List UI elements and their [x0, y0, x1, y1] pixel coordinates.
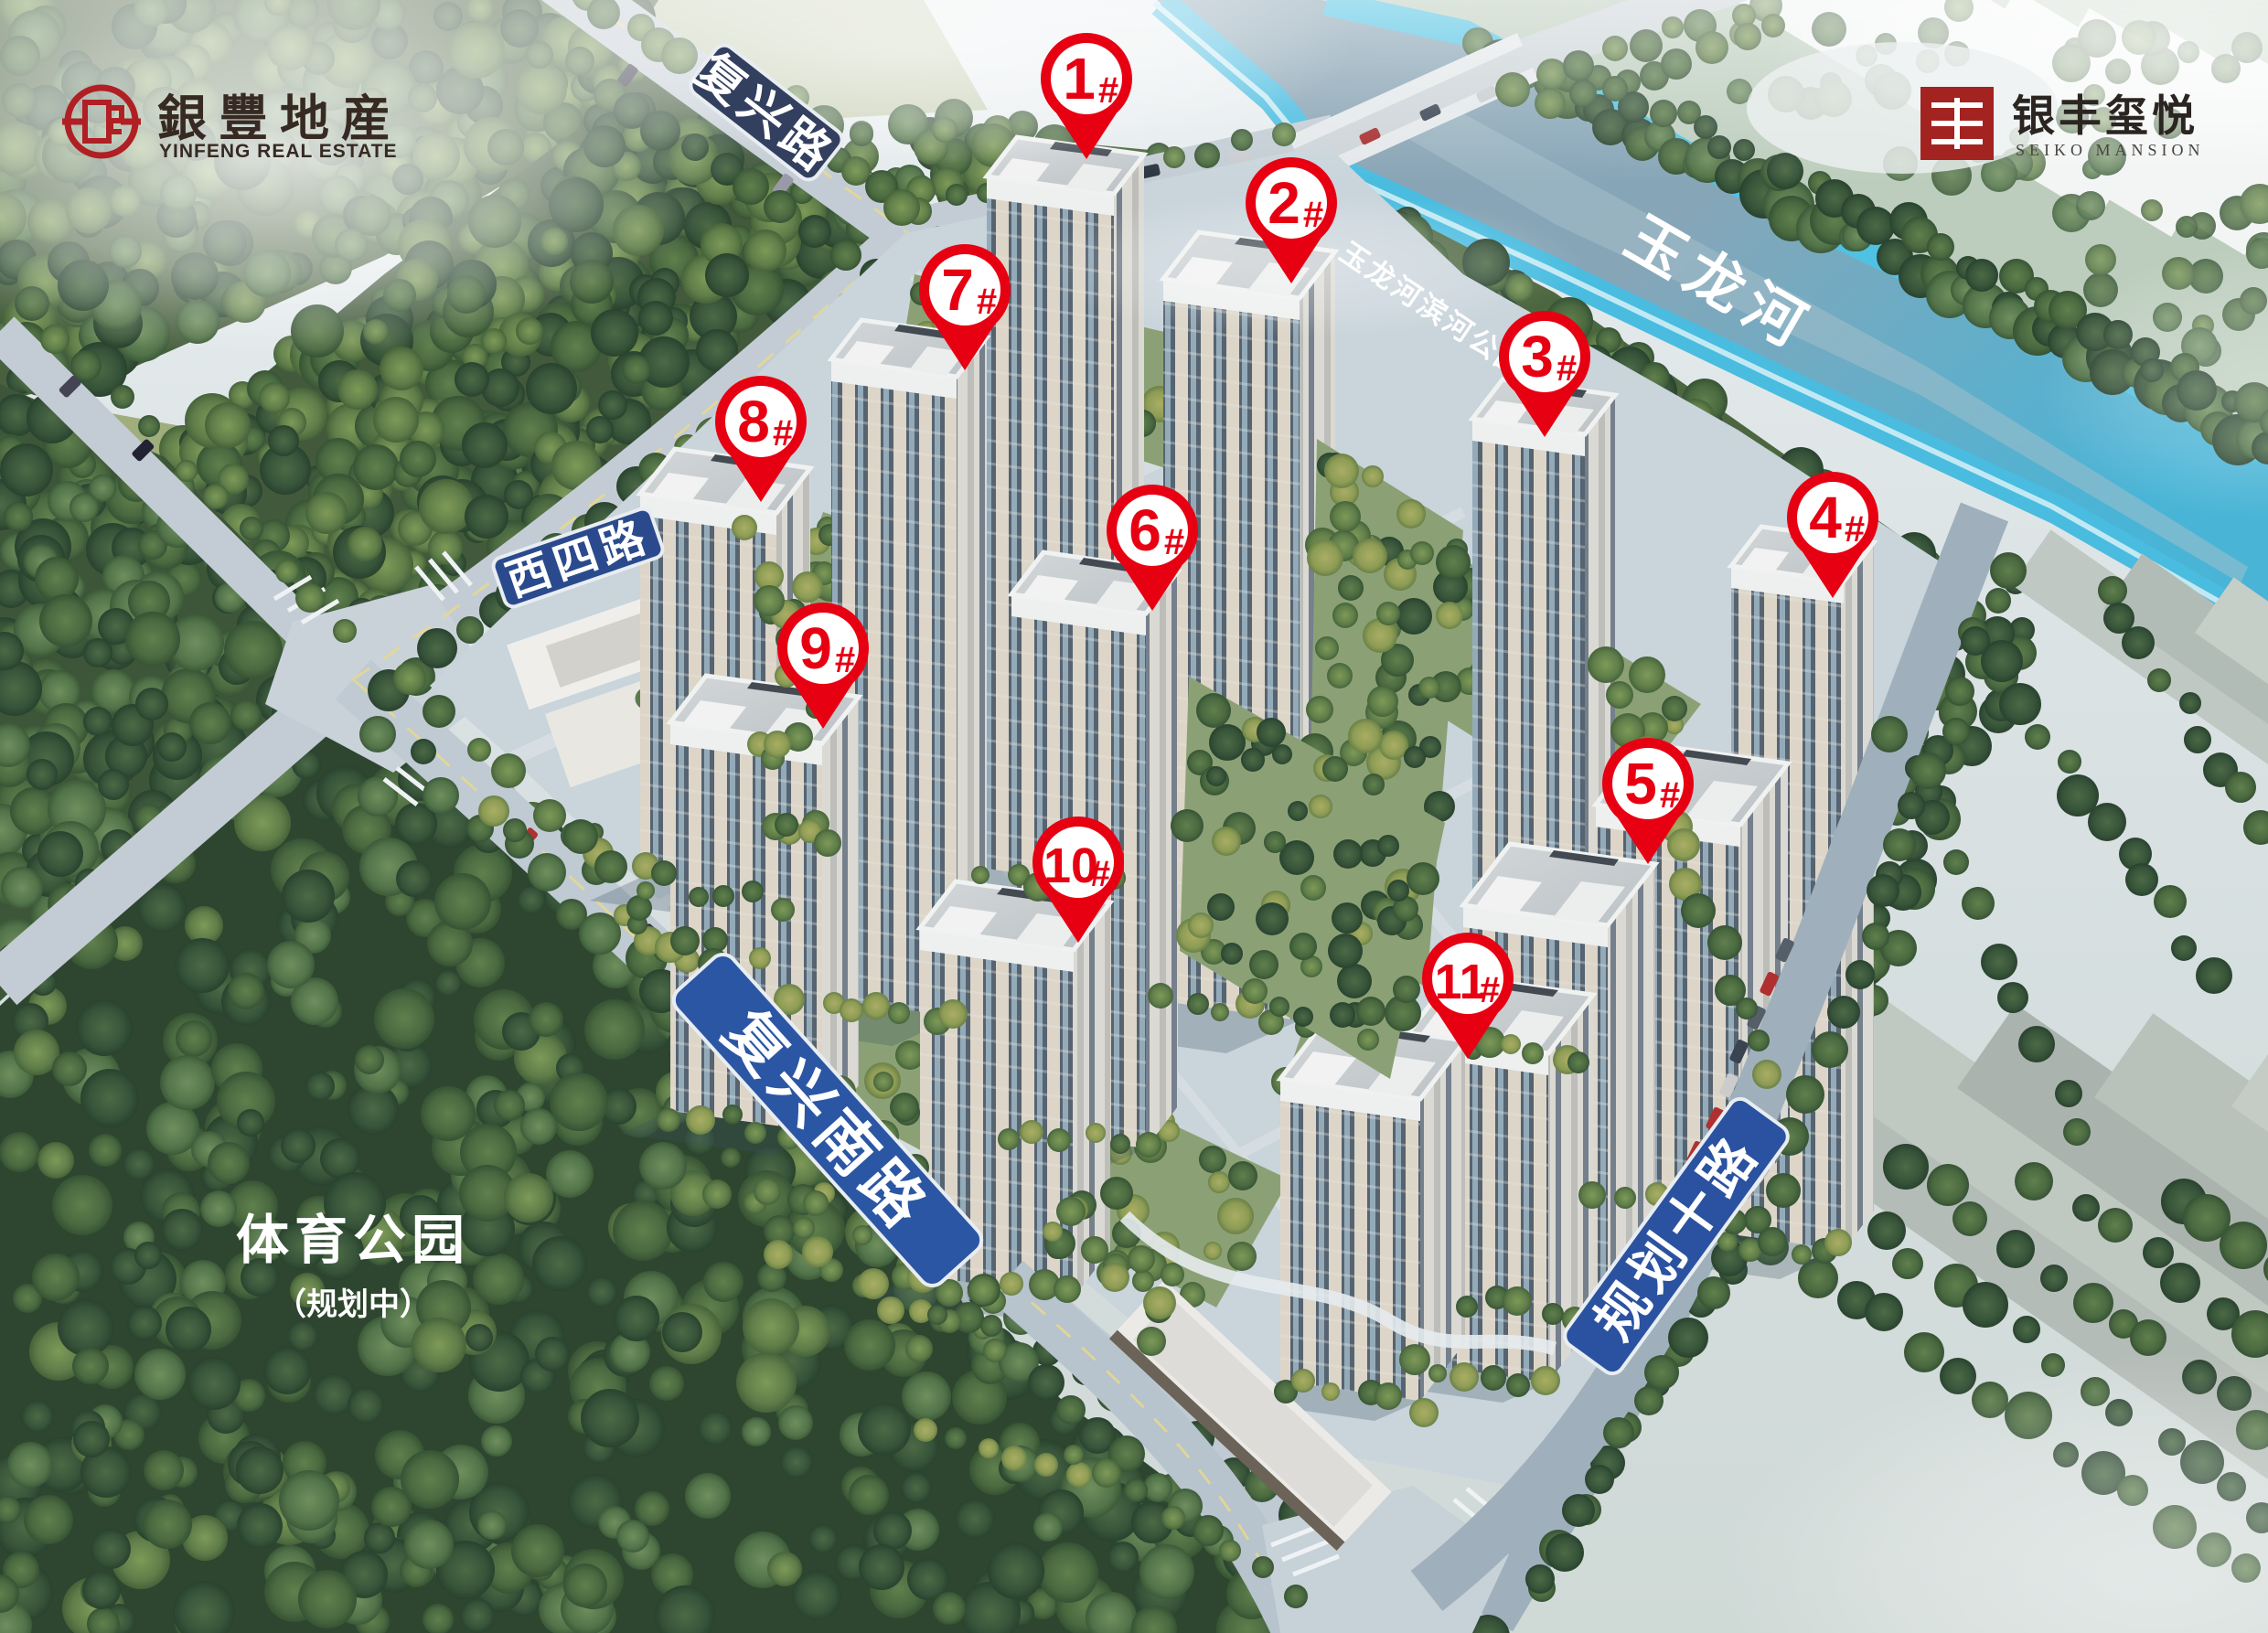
svg-text:银丰玺悦: 银丰玺悦	[2012, 91, 2198, 140]
svg-text:銀豐地産: 銀豐地産	[157, 91, 402, 146]
svg-text:（规划中）: （规划中）	[275, 1286, 431, 1322]
svg-text:YINFENG REAL ESTATE: YINFENG REAL ESTATE	[159, 141, 398, 162]
svg-text:8: 8	[737, 389, 770, 454]
svg-text:#: #	[1303, 195, 1323, 235]
svg-text:2: 2	[1268, 170, 1300, 236]
svg-text:#: #	[835, 640, 855, 680]
svg-text:7: 7	[941, 257, 974, 323]
svg-text:6: 6	[1129, 497, 1161, 563]
svg-text:9: 9	[799, 615, 832, 681]
svg-text:#: #	[1164, 522, 1184, 562]
svg-text:SEIKO MANSION: SEIKO MANSION	[2016, 141, 2205, 159]
svg-text:#: #	[1098, 70, 1118, 111]
svg-text:4: 4	[1809, 485, 1842, 550]
svg-text:3: 3	[1521, 324, 1554, 390]
svg-text:#: #	[1845, 509, 1865, 550]
svg-text:#: #	[977, 282, 997, 322]
svg-text:#: #	[1090, 854, 1110, 894]
svg-text:1: 1	[1063, 46, 1096, 112]
svg-text:#: #	[773, 413, 793, 454]
svg-text:#: #	[1557, 348, 1577, 389]
svg-text:#: #	[1480, 970, 1500, 1010]
svg-text:#: #	[1660, 775, 1680, 816]
svg-text:5: 5	[1624, 751, 1657, 816]
svg-text:体育公园: 体育公园	[236, 1211, 470, 1270]
